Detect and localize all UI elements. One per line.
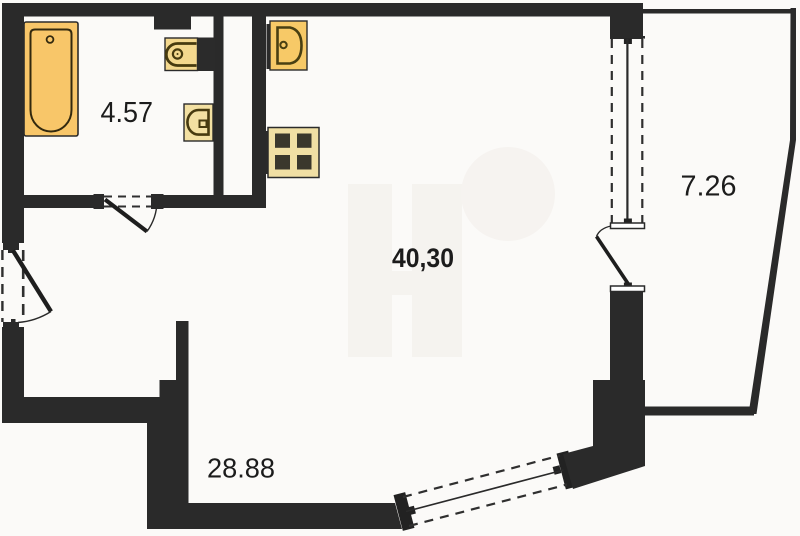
svg-text:7.26: 7.26 — [681, 170, 737, 202]
svg-text:4.57: 4.57 — [101, 97, 154, 129]
svg-text:28.88: 28.88 — [207, 453, 275, 484]
svg-text:40,30: 40,30 — [392, 243, 454, 273]
